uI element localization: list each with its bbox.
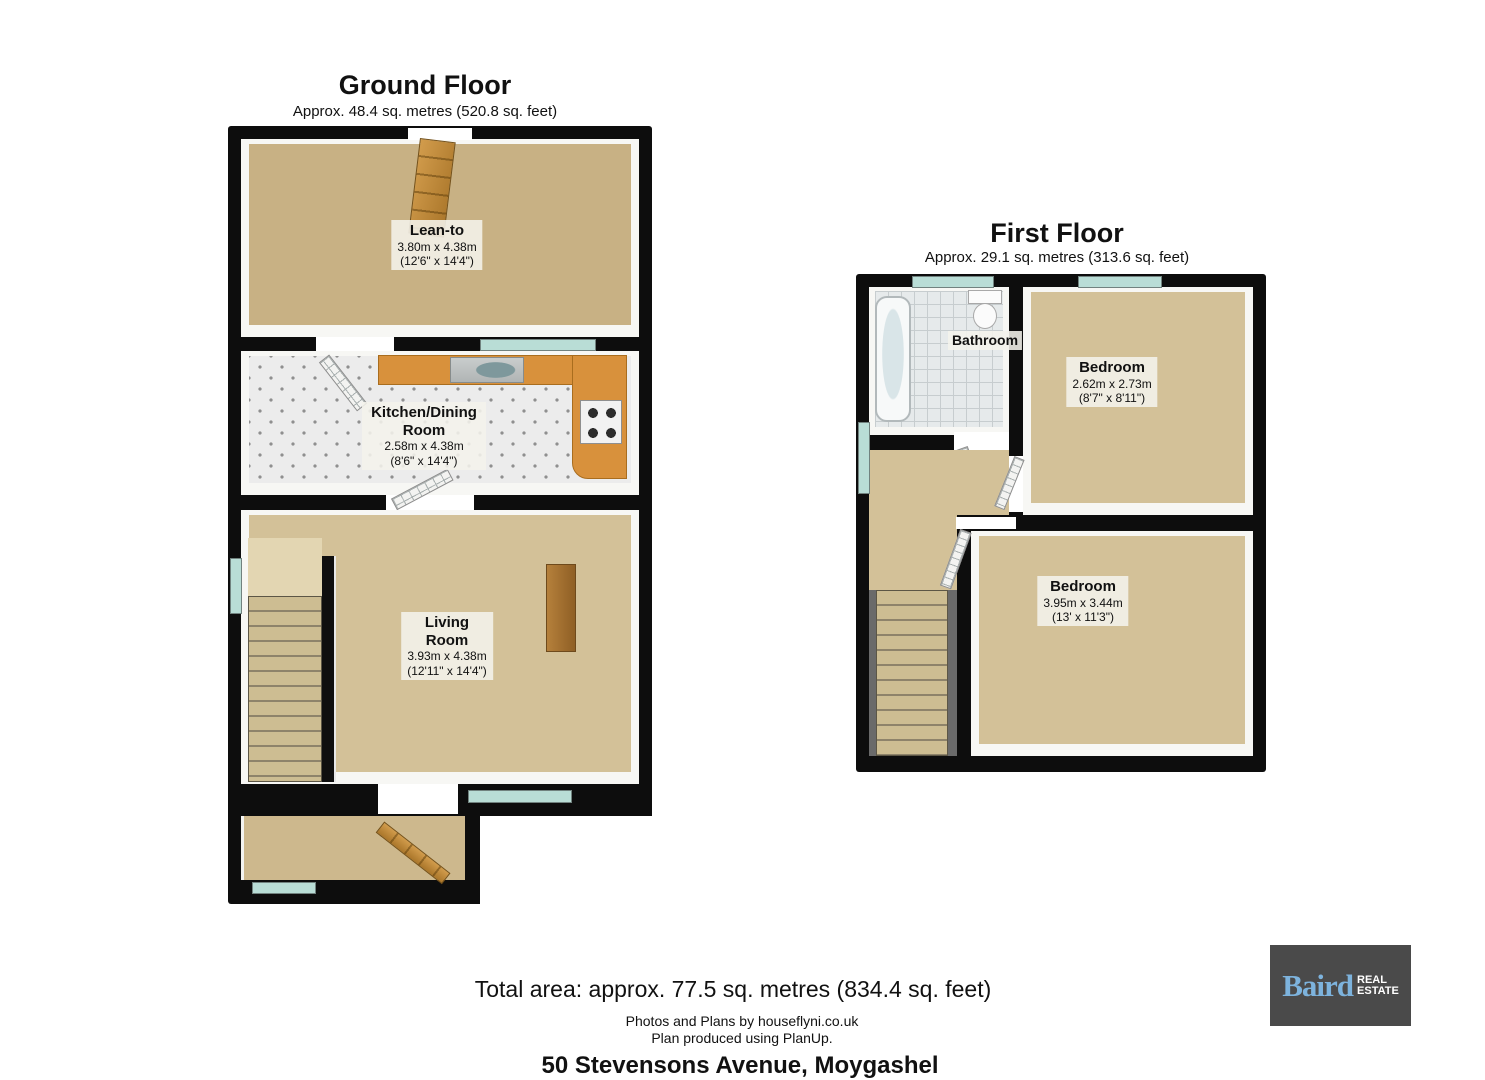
stair-landing-ground <box>248 538 322 596</box>
living-side-window <box>230 558 242 614</box>
first-floor-title: First Floor <box>990 218 1124 249</box>
ground-floor-subtitle: Approx. 48.4 sq. metres (520.8 sq. feet) <box>293 103 557 120</box>
kitchen-name: Kitchen/Dining Room <box>368 404 480 439</box>
kitchen-top-door-opening <box>316 337 394 351</box>
bedroom-large-name: Bedroom <box>1043 578 1122 596</box>
outside-area <box>480 816 652 904</box>
hall-window <box>252 882 316 894</box>
lean-to-door-opening <box>408 128 472 140</box>
bedroom-large-door-opening <box>956 517 1016 529</box>
living-rear-window <box>468 790 572 803</box>
staircase-first <box>876 590 948 756</box>
lean-to-dims-ft: (12'6" x 14'4") <box>397 254 476 268</box>
kitchen-window <box>480 339 596 351</box>
bedroom-small-dims-ft: (8'7" x 8'11") <box>1072 391 1151 405</box>
logo-tagline-line1: REAL <box>1357 975 1399 986</box>
living-room-dims-ft: (12'11" x 14'4") <box>407 664 487 678</box>
landing-window <box>858 422 870 494</box>
living-room-label: Living Room 3.93m x 4.38m (12'11" x 14'4… <box>401 612 493 680</box>
bedroom-large <box>971 531 1253 756</box>
stair-wall <box>322 556 336 782</box>
property-address: 50 Stevensons Avenue, Moygashel <box>541 1052 938 1080</box>
bedroom-small-window <box>1078 276 1162 288</box>
hall-door-opening <box>378 784 458 814</box>
first-floor-plan <box>856 274 1266 772</box>
total-area-text: Total area: approx. 77.5 sq. metres (834… <box>475 976 992 1003</box>
bedroom-large-label: Bedroom 3.95m x 3.44m (13' x 11'3") <box>1037 576 1128 626</box>
kitchen-dims-ft: (8'6" x 14'4") <box>368 454 480 468</box>
bedroom-small-name: Bedroom <box>1072 359 1151 377</box>
bedroom-large-dims-m: 3.95m x 3.44m <box>1043 596 1122 610</box>
kitchen-sink <box>450 357 524 383</box>
landing <box>869 450 957 590</box>
bathroom-label: Bathroom <box>948 331 1022 350</box>
lean-to-dims-m: 3.80m x 4.38m <box>397 240 476 254</box>
staircase-ground <box>248 596 322 782</box>
toilet <box>973 303 997 329</box>
kitchen-dims-m: 2.58m x 4.38m <box>368 439 480 453</box>
agency-logo: Baird REAL ESTATE <box>1270 945 1411 1026</box>
bedroom-large-dims-ft: (13' x 11'3") <box>1043 610 1122 624</box>
lean-to-name: Lean-to <box>397 222 476 240</box>
logo-brand-text: Baird <box>1282 968 1353 1004</box>
bedroom-small-dims-m: 2.62m x 2.73m <box>1072 377 1151 391</box>
ground-floor-title: Ground Floor <box>339 70 511 101</box>
lean-to-label: Lean-to 3.80m x 4.38m (12'6" x 14'4") <box>391 220 482 270</box>
living-room-name: Living Room <box>415 614 479 649</box>
credit-planup-text: Plan produced using PlanUp. <box>651 1030 832 1046</box>
bathroom-window <box>912 276 994 288</box>
first-floor-subtitle: Approx. 29.1 sq. metres (313.6 sq. feet) <box>925 249 1189 266</box>
toilet-tank <box>968 290 1002 304</box>
living-room-dims-m: 3.93m x 4.38m <box>407 649 487 663</box>
radiator <box>546 564 576 652</box>
logo-tagline: REAL ESTATE <box>1357 975 1399 997</box>
bedroom-small-label: Bedroom 2.62m x 2.73m (8'7" x 8'11") <box>1066 357 1157 407</box>
kitchen-label: Kitchen/Dining Room 2.58m x 4.38m (8'6" … <box>362 402 486 470</box>
floorplan-page: Ground Floor Approx. 48.4 sq. metres (52… <box>0 0 1485 1080</box>
credit-photos-text: Photos and Plans by houseflyni.co.uk <box>626 1013 859 1029</box>
cooker-hob <box>580 400 622 444</box>
bathtub <box>875 296 911 422</box>
logo-tagline-line2: ESTATE <box>1357 986 1399 997</box>
